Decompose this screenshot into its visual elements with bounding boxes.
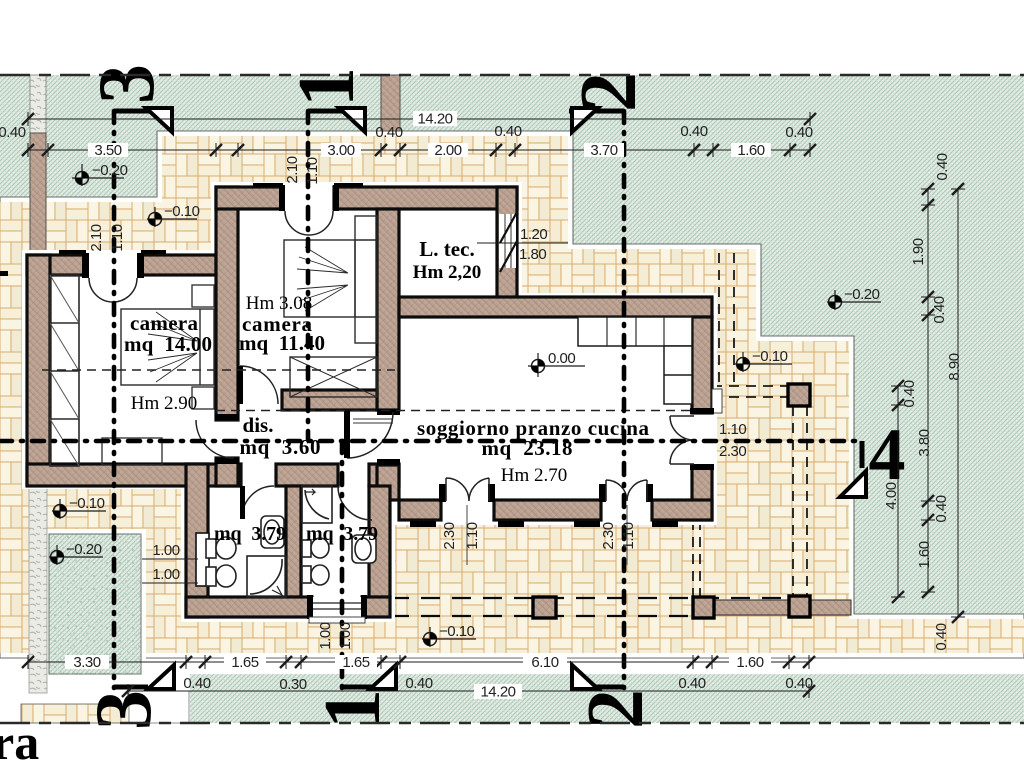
svg-text:0.40: 0.40	[375, 124, 402, 141]
svg-text:0.40: 0.40	[934, 153, 951, 180]
svg-text:14.20: 14.20	[417, 111, 452, 128]
svg-text:−0.20: −0.20	[92, 162, 128, 179]
svg-text:−0.20: −0.20	[66, 541, 102, 558]
svg-text:0.40: 0.40	[901, 380, 918, 407]
svg-text:0.40: 0.40	[785, 124, 812, 141]
svg-text:mq 3.79: mq 3.79	[306, 523, 378, 545]
svg-text:1.10: 1.10	[464, 522, 481, 549]
svg-text:ra: ra	[0, 714, 39, 768]
svg-text:0.30: 0.30	[279, 676, 306, 693]
svg-text:−0.10: −0.10	[439, 623, 475, 640]
svg-text:3: 3	[83, 64, 171, 104]
svg-text:Hm 2,20: Hm 2,20	[413, 262, 482, 283]
svg-text:6.10: 6.10	[531, 654, 558, 671]
svg-text:1.00: 1.00	[317, 622, 334, 649]
svg-text:dis.: dis.	[243, 413, 274, 437]
svg-text:0.00: 0.00	[548, 350, 575, 367]
svg-text:1.80: 1.80	[519, 246, 546, 263]
svg-text:1.00: 1.00	[337, 622, 354, 649]
svg-text:−0.10: −0.10	[752, 348, 788, 365]
svg-text:Hm 3.08: Hm 3.08	[246, 293, 313, 314]
svg-text:1.90: 1.90	[910, 238, 927, 265]
svg-text:Hm 2.70: Hm 2.70	[501, 465, 568, 486]
svg-text:2.30: 2.30	[719, 443, 746, 460]
svg-text:0.40: 0.40	[931, 296, 948, 323]
svg-text:0.40: 0.40	[933, 623, 950, 650]
svg-text:Hm 2.90: Hm 2.90	[131, 393, 198, 414]
svg-text:1.00: 1.00	[152, 542, 179, 559]
svg-text:−0.10: −0.10	[164, 203, 200, 220]
svg-text:1.10: 1.10	[620, 522, 637, 549]
svg-text:1.20: 1.20	[520, 226, 547, 243]
svg-text:3.70: 3.70	[590, 142, 617, 159]
svg-text:1.10: 1.10	[304, 157, 321, 184]
svg-text:1.10: 1.10	[109, 224, 126, 251]
svg-text:1.10: 1.10	[719, 421, 746, 438]
svg-text:1.65: 1.65	[342, 654, 369, 671]
svg-text:2.10: 2.10	[88, 224, 105, 251]
svg-text:mq 14.00: mq 14.00	[124, 332, 212, 356]
svg-text:2.00: 2.00	[434, 142, 461, 159]
svg-text:−0.10: −0.10	[69, 495, 105, 512]
svg-text:1.60: 1.60	[737, 142, 764, 159]
svg-text:0.40: 0.40	[678, 675, 705, 692]
svg-text:8.90: 8.90	[946, 353, 963, 380]
svg-text:2.30: 2.30	[600, 522, 617, 549]
svg-text:1: 1	[283, 67, 371, 107]
svg-text:2.10: 2.10	[284, 156, 301, 183]
svg-text:mq 3.79: mq 3.79	[214, 523, 286, 545]
svg-text:14.20: 14.20	[480, 684, 515, 701]
svg-text:mq 11.40: mq 11.40	[239, 331, 325, 355]
svg-text:1.65: 1.65	[231, 654, 258, 671]
svg-text:mq 3.60: mq 3.60	[240, 435, 321, 459]
svg-text:0.40: 0.40	[0, 124, 26, 141]
svg-text:0.40: 0.40	[933, 495, 950, 522]
svg-text:3.00: 3.00	[327, 142, 354, 159]
svg-text:3.50: 3.50	[94, 142, 121, 159]
svg-text:3.30: 3.30	[73, 654, 100, 671]
svg-text:2.30: 2.30	[441, 522, 458, 549]
svg-text:0.40: 0.40	[680, 123, 707, 140]
svg-text:4.00: 4.00	[883, 482, 900, 509]
svg-text:2: 2	[565, 72, 653, 112]
svg-text:3.80: 3.80	[916, 429, 933, 456]
svg-text:mq 23.18: mq 23.18	[482, 436, 573, 460]
svg-text:1.60: 1.60	[916, 541, 933, 568]
svg-text:−0.20: −0.20	[844, 286, 880, 303]
svg-text:1.60: 1.60	[736, 654, 763, 671]
svg-text:0.40: 0.40	[183, 675, 210, 692]
svg-text:L. tec.: L. tec.	[419, 237, 474, 261]
svg-text:1.00: 1.00	[152, 566, 179, 583]
svg-text:0.40: 0.40	[405, 675, 432, 692]
svg-text:0.40: 0.40	[494, 123, 521, 140]
